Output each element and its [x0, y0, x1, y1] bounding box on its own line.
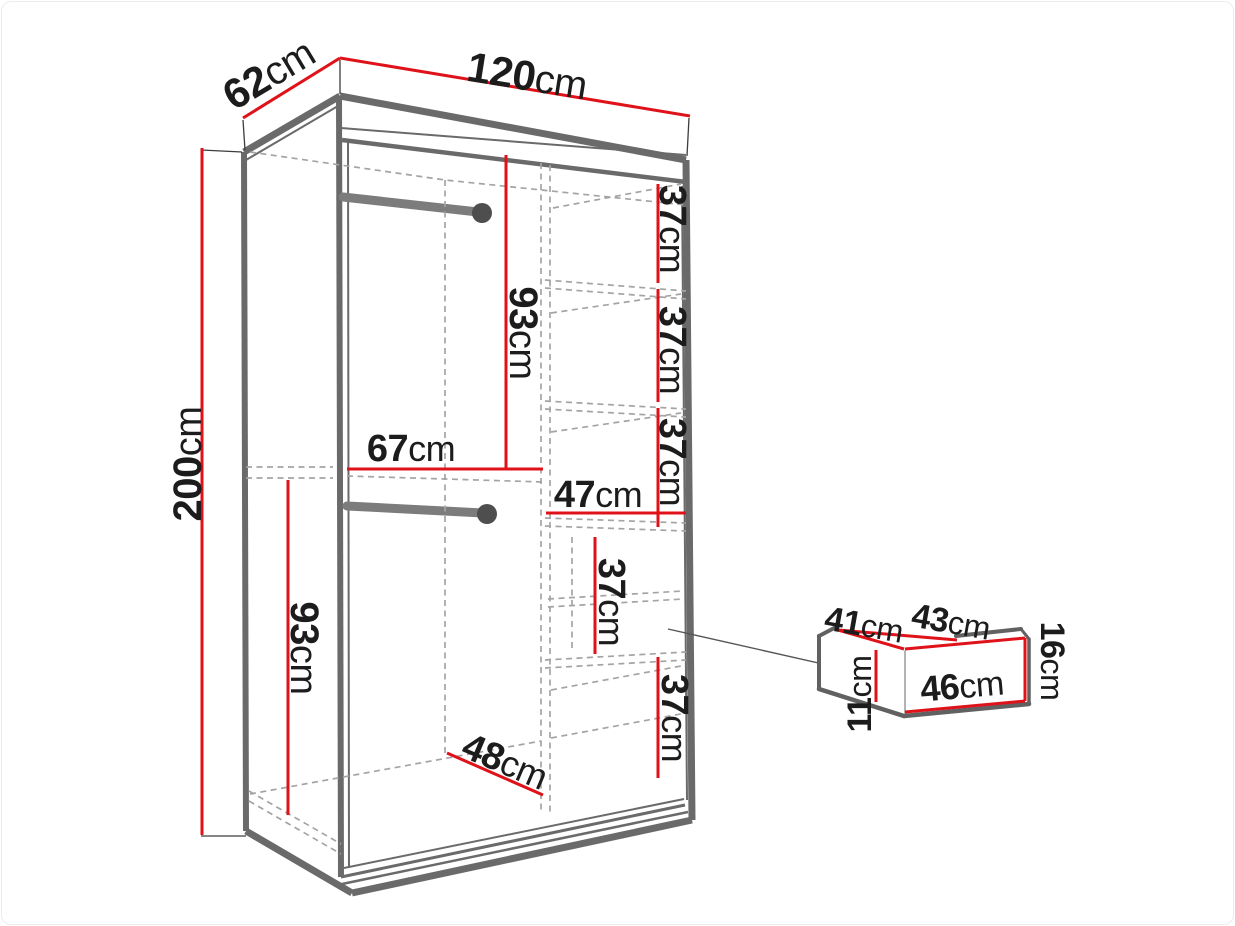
hidden-shelf3-a	[545, 518, 686, 523]
upper-rail-end-cap	[472, 203, 492, 223]
label-interior-depth-48: 48cm	[456, 725, 554, 798]
extension-width-end	[687, 118, 689, 156]
body-edge-fascia-thin	[341, 128, 686, 155]
hidden-shelf3-b	[545, 526, 686, 531]
label-upper-hang-93: 93cm	[501, 286, 545, 379]
body-edge-back-left	[244, 152, 246, 831]
label-bottom-37: 37cm	[653, 674, 695, 762]
wardrobe-dimension-diagram: 62cm 120cm 200cm 93cm 67cm 47cm 37cm 37c…	[0, 0, 1235, 926]
body-edge-floor-front	[341, 805, 685, 877]
label-drawer-front-16: 16cm	[1033, 622, 1071, 701]
extension-depth-end	[243, 120, 245, 150]
hanging-rails	[343, 197, 497, 524]
label-width-120: 120cm	[464, 43, 591, 108]
hidden-shelf4-b	[545, 660, 686, 668]
label-drawer-bay-37: 37cm	[590, 558, 632, 646]
hidden-side-bottom-b	[249, 801, 341, 854]
label-shelf-gap-2: 37cm	[651, 306, 693, 394]
label-drawer-inner-46: 46cm	[918, 661, 1005, 709]
label-shelf-gap-3: 37cm	[651, 418, 693, 506]
label-depth-62: 62cm	[214, 28, 322, 119]
label-height-200: 200cm	[166, 407, 210, 522]
hidden-shelf2-a	[545, 401, 686, 409]
hidden-ceiling-back	[250, 152, 686, 205]
label-shelf-width-47: 47cm	[554, 474, 642, 516]
body-edge-side-top-inner	[246, 106, 338, 160]
body-edge-plinth	[342, 812, 688, 884]
label-shelf-gap-1: 37cm	[651, 185, 693, 273]
hidden-shelf2-b	[545, 409, 686, 417]
upper-rail	[343, 197, 478, 212]
body-edge-front-left	[339, 96, 341, 877]
lower-rail	[347, 506, 483, 513]
label-drawer-inner-11: 11cm	[841, 655, 879, 732]
hidden-shelf4-a	[545, 652, 686, 660]
body-edge-fascia-bottom	[342, 140, 686, 182]
label-section-67: 67cm	[367, 428, 455, 470]
label-lower-hang-93: 93cm	[282, 601, 326, 694]
hidden-side-bottom-a	[249, 791, 341, 844]
diagram-svg: 62cm 120cm 200cm 93cm 67cm 47cm 37cm 37c…	[0, 0, 1235, 926]
lower-rail-end-cap	[477, 504, 497, 524]
extension-height-top	[201, 150, 242, 152]
